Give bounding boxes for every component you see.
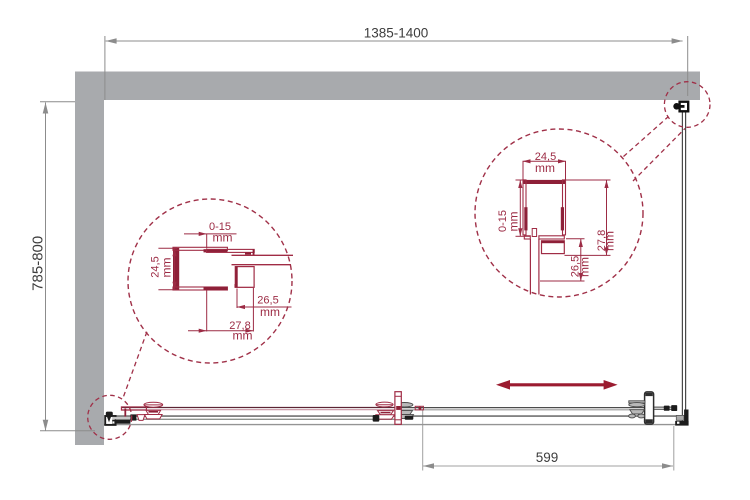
svg-text:mm: mm xyxy=(160,258,174,278)
svg-text:785-800: 785-800 xyxy=(30,236,47,291)
svg-text:1385-1400: 1385-1400 xyxy=(364,26,429,41)
svg-text:mm: mm xyxy=(213,231,233,245)
svg-text:599: 599 xyxy=(536,450,559,465)
svg-text:mm: mm xyxy=(535,161,555,175)
